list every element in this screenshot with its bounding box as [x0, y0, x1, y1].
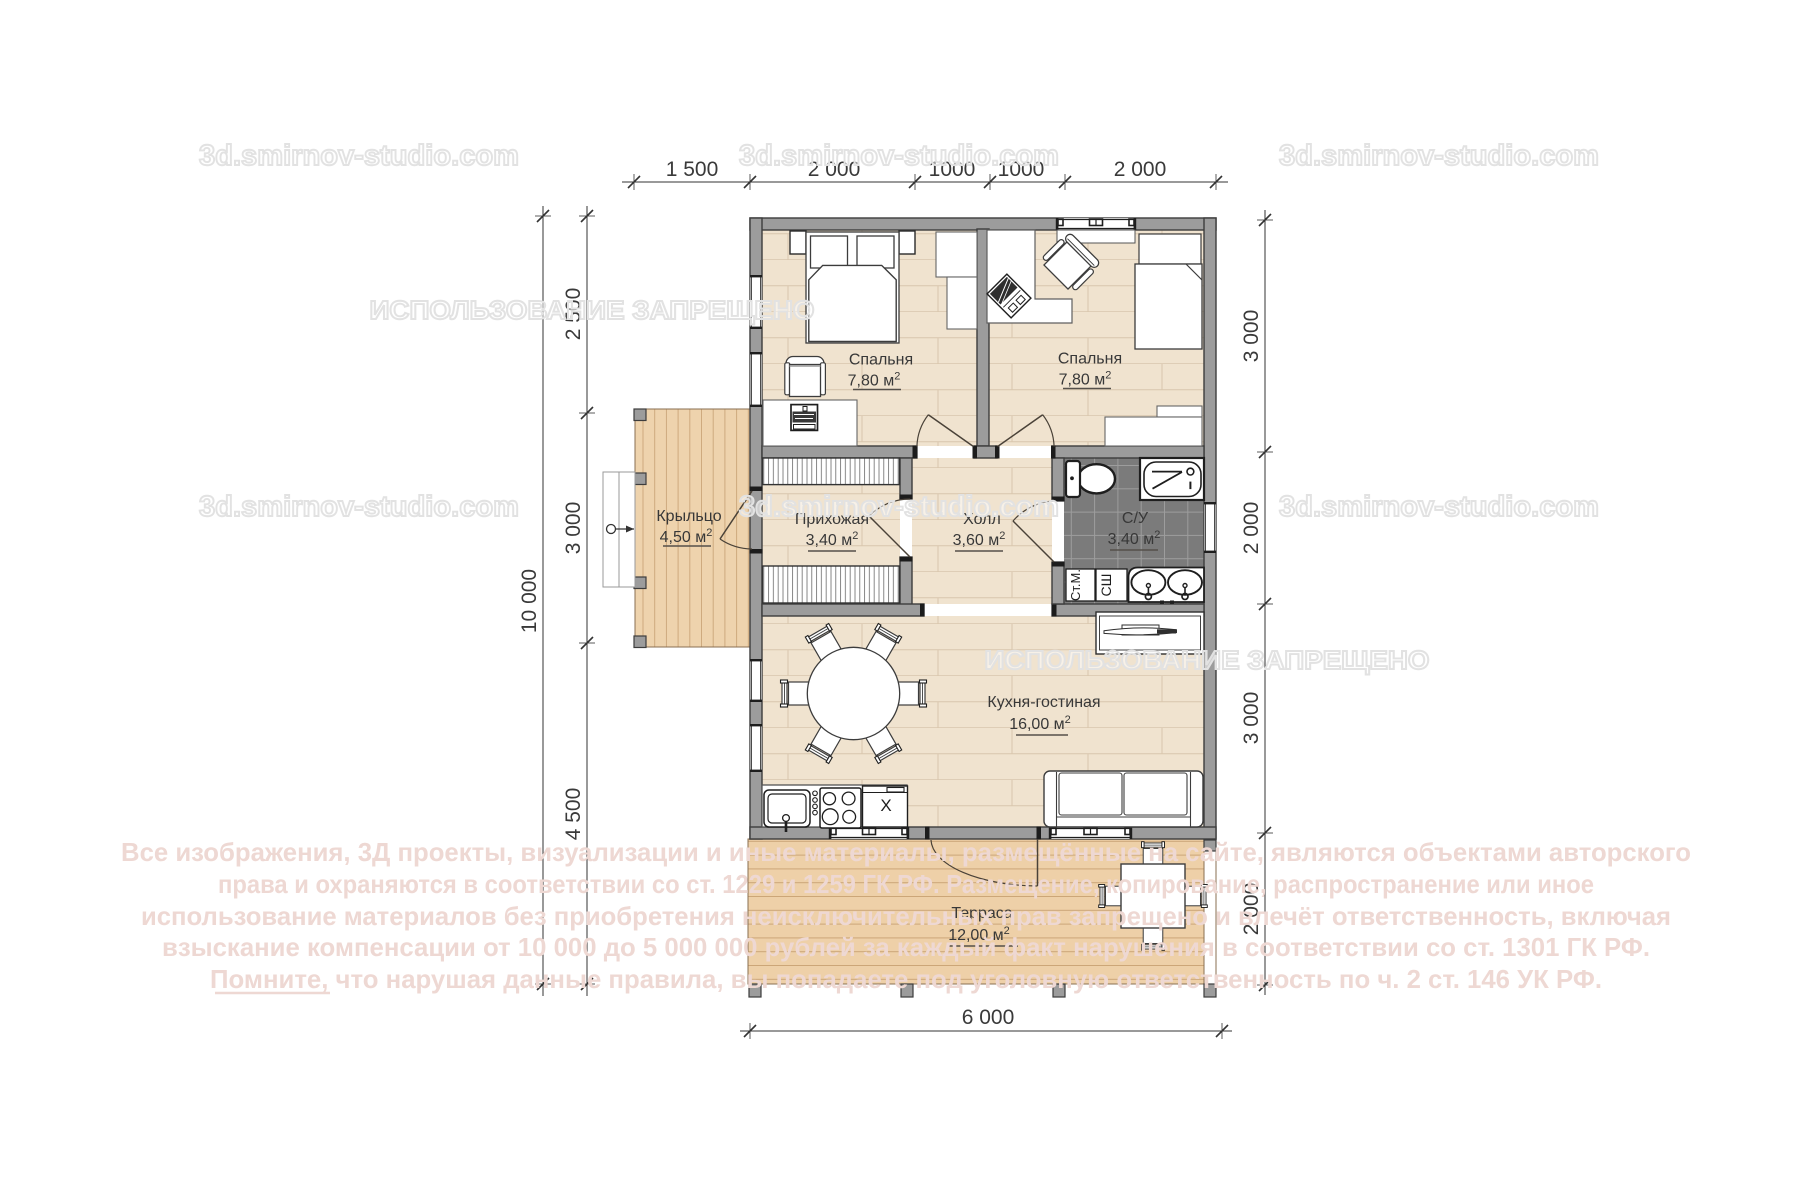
svg-text:3d.smirnov-studio.com: 3d.smirnov-studio.com	[1279, 140, 1599, 172]
svg-text:3 000: 3 000	[1240, 310, 1263, 363]
svg-text:Помните, что нарушая данные пр: Помните, что нарушая данные правила, вы …	[210, 964, 1602, 994]
svg-text:С/У: С/У	[1122, 510, 1149, 527]
svg-text:Спальня: Спальня	[1058, 351, 1122, 368]
svg-text:права и охраняются в соответст: права и охраняются в соответствии со ст.…	[218, 869, 1594, 899]
svg-text:Крыльцо: Крыльцо	[656, 508, 721, 525]
svg-text:3,60 м2: 3,60 м2	[953, 530, 1006, 549]
svg-text:3d.smirnov-studio.com: 3d.smirnov-studio.com	[739, 491, 1059, 523]
svg-text:Все изображения, 3Д проекты, в: Все изображения, 3Д проекты, визуализаци…	[121, 837, 1691, 867]
svg-text:2 000: 2 000	[1114, 158, 1167, 181]
svg-text:7,80 м2: 7,80 м2	[1059, 370, 1112, 389]
svg-text:Кухня-гостиная: Кухня-гостиная	[987, 694, 1100, 711]
svg-text:X: X	[880, 796, 891, 815]
svg-text:ИСПОЛЬЗОВАНИЕ ЗАПРЕЩЕНО: ИСПОЛЬЗОВАНИЕ ЗАПРЕЩЕНО	[985, 647, 1430, 675]
svg-text:3d.smirnov-studio.com: 3d.smirnov-studio.com	[199, 491, 519, 523]
svg-text:3,40 м2: 3,40 м2	[1108, 529, 1161, 548]
svg-text:3 000: 3 000	[1240, 692, 1263, 745]
svg-text:1 500: 1 500	[666, 158, 719, 181]
svg-text:СШ: СШ	[1098, 574, 1114, 597]
svg-text:4,50 м2: 4,50 м2	[660, 527, 713, 546]
svg-text:Ст.М.: Ст.М.	[1068, 569, 1083, 601]
svg-text:10 000: 10 000	[518, 569, 541, 633]
svg-text:16,00 м2: 16,00 м2	[1009, 714, 1071, 733]
svg-text:3,40 м2: 3,40 м2	[806, 530, 859, 549]
svg-text:4 500: 4 500	[562, 788, 585, 841]
svg-text:взыскание компенсации от 10 00: взыскание компенсации от 10 000 до 5 000…	[162, 932, 1650, 962]
svg-text:Спальня: Спальня	[849, 352, 913, 369]
svg-text:ИСПОЛЬЗОВАНИЕ ЗАПРЕЩЕНО: ИСПОЛЬЗОВАНИЕ ЗАПРЕЩЕНО	[370, 297, 815, 325]
svg-text:7,80 м2: 7,80 м2	[848, 371, 901, 390]
svg-text:2 000: 2 000	[1240, 502, 1263, 555]
svg-text:3d.smirnov-studio.com: 3d.smirnov-studio.com	[739, 140, 1059, 172]
svg-text:использование материалов без п: использование материалов без приобретени…	[141, 901, 1671, 931]
svg-text:6 000: 6 000	[962, 1006, 1015, 1029]
svg-text:3d.smirnov-studio.com: 3d.smirnov-studio.com	[199, 140, 519, 172]
svg-text:3 000: 3 000	[562, 502, 585, 555]
svg-text:3d.smirnov-studio.com: 3d.smirnov-studio.com	[1279, 491, 1599, 523]
